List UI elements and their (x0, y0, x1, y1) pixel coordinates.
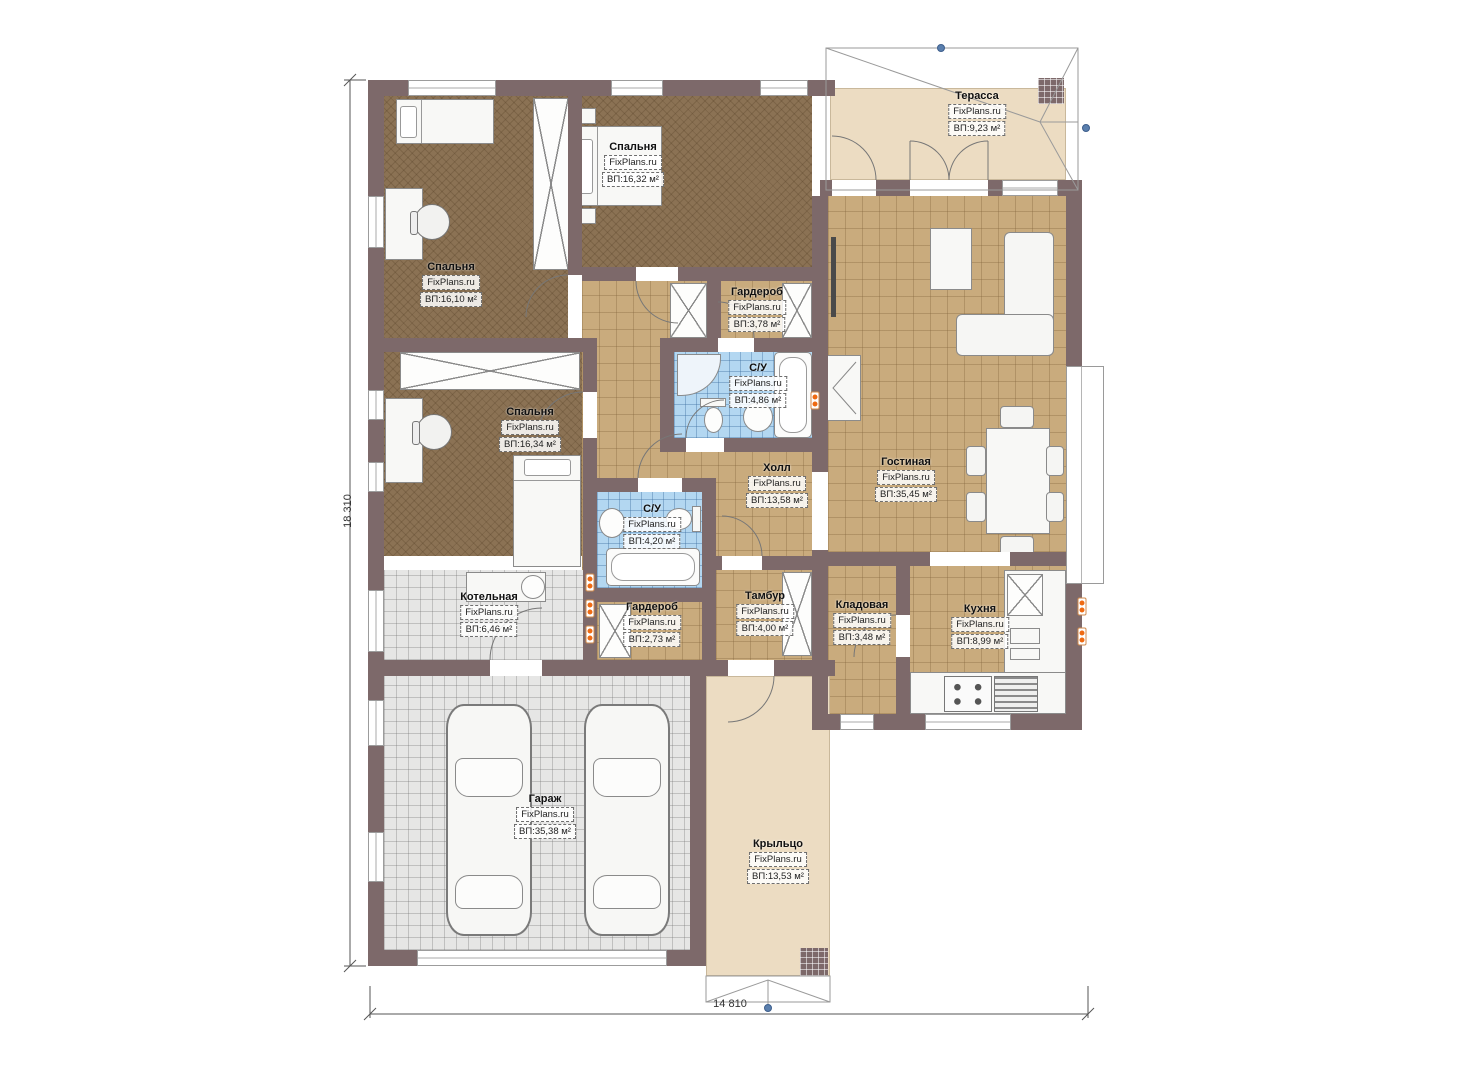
brand-box: FixPlans.ru (748, 476, 806, 491)
garage-gate (417, 950, 667, 966)
toilet-tank (700, 398, 726, 407)
wardrobe-cabinet (400, 352, 580, 390)
window (760, 80, 808, 96)
door-opening (636, 267, 678, 281)
power-socket (586, 626, 595, 644)
room-name: Крыльцо (753, 838, 803, 850)
power-socket (1078, 598, 1087, 616)
office-chair (416, 414, 452, 450)
room-name: Гостиная (881, 456, 931, 468)
room-label-vestibule: Тамбур FixPlans.ru ВП:4,00 м² (736, 590, 794, 636)
wardrobe-cabinet (782, 283, 812, 338)
room-name: Кухня (964, 603, 996, 615)
area-box: ВП:4,86 м² (730, 393, 787, 408)
brand-box: FixPlans.ru (833, 613, 891, 628)
toilet-tank (692, 506, 701, 532)
room-label-living-room: Гостиная FixPlans.ru ВП:35,45 м² (875, 456, 937, 502)
area-box: ВП:3,78 м² (729, 317, 786, 332)
wardrobe-cabinet (533, 98, 569, 270)
room-name: Терасса (955, 90, 999, 102)
window (611, 80, 663, 96)
window (840, 714, 874, 730)
room-label-terrace: Терасса FixPlans.ru ВП:9,23 м² (948, 90, 1006, 136)
terrace-pier (1038, 78, 1064, 104)
room-name: Спальня (506, 406, 554, 418)
area-box: ВП:8,99 м² (952, 634, 1009, 649)
wall-porch-left (690, 660, 706, 966)
room-label-hall: Холл FixPlans.ru ВП:13,58 м² (746, 462, 808, 508)
door-opening (930, 552, 1010, 566)
bed (513, 455, 581, 567)
floor-plan-canvas: Терасса FixPlans.ru ВП:9,23 м² Спальня F… (0, 0, 1474, 1080)
power-socket (586, 574, 595, 592)
door-opening (490, 660, 542, 676)
brand-box: FixPlans.ru (728, 300, 786, 315)
dimension-width: 14 810 (700, 998, 760, 1010)
dimension-height: 18 310 (342, 481, 354, 541)
door-opening (910, 180, 988, 196)
roof-marker (937, 44, 945, 52)
wall-vestibule-top (702, 556, 828, 570)
brand-box: FixPlans.ru (604, 155, 662, 170)
bathtub (606, 548, 700, 586)
wall-storage-left (812, 566, 828, 730)
fireplace (827, 355, 861, 421)
brand-box: FixPlans.ru (501, 420, 559, 435)
bay-window (1066, 366, 1104, 584)
brand-box: FixPlans.ru (623, 615, 681, 630)
porch-pier (800, 948, 828, 976)
door-opening (728, 660, 774, 676)
room-name: Гардероб (626, 601, 678, 613)
area-box: ВП:6,46 м² (461, 622, 518, 637)
room-label-bedroom-2: Спальня FixPlans.ru ВП:16,32 м² (602, 141, 664, 187)
window (368, 196, 384, 248)
area-box: ВП:3,48 м² (834, 630, 891, 645)
door-opening (686, 438, 724, 452)
door-opening (832, 180, 876, 196)
room-name: Кладовая (836, 599, 889, 611)
door-opening (583, 392, 597, 438)
room-name: С/У (643, 503, 661, 515)
window (368, 390, 384, 420)
room-name: Спальня (609, 141, 657, 153)
window (408, 80, 496, 96)
room-label-bedroom-3: Спальня FixPlans.ru ВП:16,34 м² (499, 406, 561, 452)
area-box: ВП:16,10 м² (420, 292, 482, 307)
office-chair (414, 204, 450, 240)
power-socket (586, 600, 595, 618)
dining-chair (1000, 406, 1034, 428)
room-label-bedroom-1: Спальня FixPlans.ru ВП:16,10 м² (420, 261, 482, 307)
room-name: Гараж (529, 793, 562, 805)
area-box: ВП:13,53 м² (747, 869, 809, 884)
brand-box: FixPlans.ru (877, 470, 935, 485)
window (368, 832, 384, 882)
room-label-garage: Гараж FixPlans.ru ВП:35,38 м² (514, 793, 576, 839)
window (1002, 180, 1058, 196)
brand-box: FixPlans.ru (736, 604, 794, 619)
room-name: Тамбур (745, 590, 785, 602)
brand-box: FixPlans.ru (623, 517, 681, 532)
wall-bedroom1-bottom (368, 338, 597, 352)
door-opening (722, 556, 762, 570)
wardrobe-cabinet (670, 283, 707, 338)
sofa (956, 314, 1054, 356)
brand-box: FixPlans.ru (749, 852, 807, 867)
brand-box: FixPlans.ru (422, 275, 480, 290)
room-name: Котельная (460, 591, 518, 603)
area-box: ВП:13,58 м² (746, 493, 808, 508)
wall-vestibule-left (702, 556, 716, 676)
area-box: ВП:4,20 м² (624, 534, 681, 549)
area-box: ВП:16,32 м² (602, 172, 664, 187)
room-name: Спальня (427, 261, 475, 273)
stove (944, 676, 992, 712)
bed (396, 99, 494, 144)
dining-chair (1046, 492, 1064, 522)
dining-chair (1046, 446, 1064, 476)
tv (831, 237, 836, 317)
room-label-wardrobe-273: Гардероб FixPlans.ru ВП:2,73 м² (623, 601, 681, 647)
brand-box: FixPlans.ru (729, 376, 787, 391)
oven (994, 676, 1038, 712)
room-name: Холл (763, 462, 791, 474)
area-box: ВП:35,38 м² (514, 824, 576, 839)
brand-box: FixPlans.ru (516, 807, 574, 822)
roof-marker (764, 1004, 772, 1012)
room-label-bathroom-2: С/У FixPlans.ru ВП:4,20 м² (623, 503, 681, 549)
brand-box: FixPlans.ru (951, 617, 1009, 632)
toilet (704, 407, 723, 433)
area-box: ВП:16,34 м² (499, 437, 561, 452)
door-opening (896, 615, 910, 657)
window (368, 590, 384, 652)
area-box: ВП:35,45 м² (875, 487, 937, 502)
room-name: Гардероб (731, 286, 783, 298)
room-label-storage: Кладовая FixPlans.ru ВП:3,48 м² (833, 599, 891, 645)
brand-box: FixPlans.ru (460, 605, 518, 620)
wall-bath2-bottom (583, 588, 716, 602)
brand-box: FixPlans.ru (948, 104, 1006, 119)
door-opening (638, 478, 682, 492)
room-label-porch: Крыльцо FixPlans.ru ВП:13,53 м² (747, 838, 809, 884)
door-opening (568, 275, 582, 317)
window (368, 700, 384, 746)
door-opening (718, 338, 754, 352)
kitchen-sink (1010, 648, 1040, 660)
area-box: ВП:2,73 м² (624, 632, 681, 647)
roof-marker (1082, 124, 1090, 132)
window (368, 462, 384, 492)
boiler-dial (521, 575, 545, 599)
room-label-boiler-room: Котельная FixPlans.ru ВП:6,46 м² (460, 591, 518, 637)
area-box: ВП:4,00 м² (737, 621, 794, 636)
kitchen-sink (1010, 628, 1040, 644)
area-box: ВП:9,23 м² (949, 121, 1006, 136)
dining-chair (966, 446, 986, 476)
wall-bedroom2-bottom (568, 267, 828, 281)
sink (599, 508, 625, 538)
dining-chair (966, 492, 986, 522)
room-label-kitchen: Кухня FixPlans.ru ВП:8,99 м² (951, 603, 1009, 649)
power-socket (1078, 628, 1087, 646)
window (925, 714, 1011, 730)
room-label-wardrobe-378: Гардероб FixPlans.ru ВП:3,78 м² (728, 286, 786, 332)
room-name: С/У (749, 362, 767, 374)
door-opening (812, 472, 828, 550)
car (584, 704, 670, 936)
coffee-table (930, 228, 972, 290)
fridge (1007, 574, 1043, 616)
wall-bedroom1-right (568, 96, 582, 267)
wall-bath1-left (660, 338, 674, 452)
dining-table (986, 428, 1050, 534)
room-label-bathroom-1: С/У FixPlans.ru ВП:4,86 м² (729, 362, 787, 408)
power-socket (811, 392, 820, 410)
